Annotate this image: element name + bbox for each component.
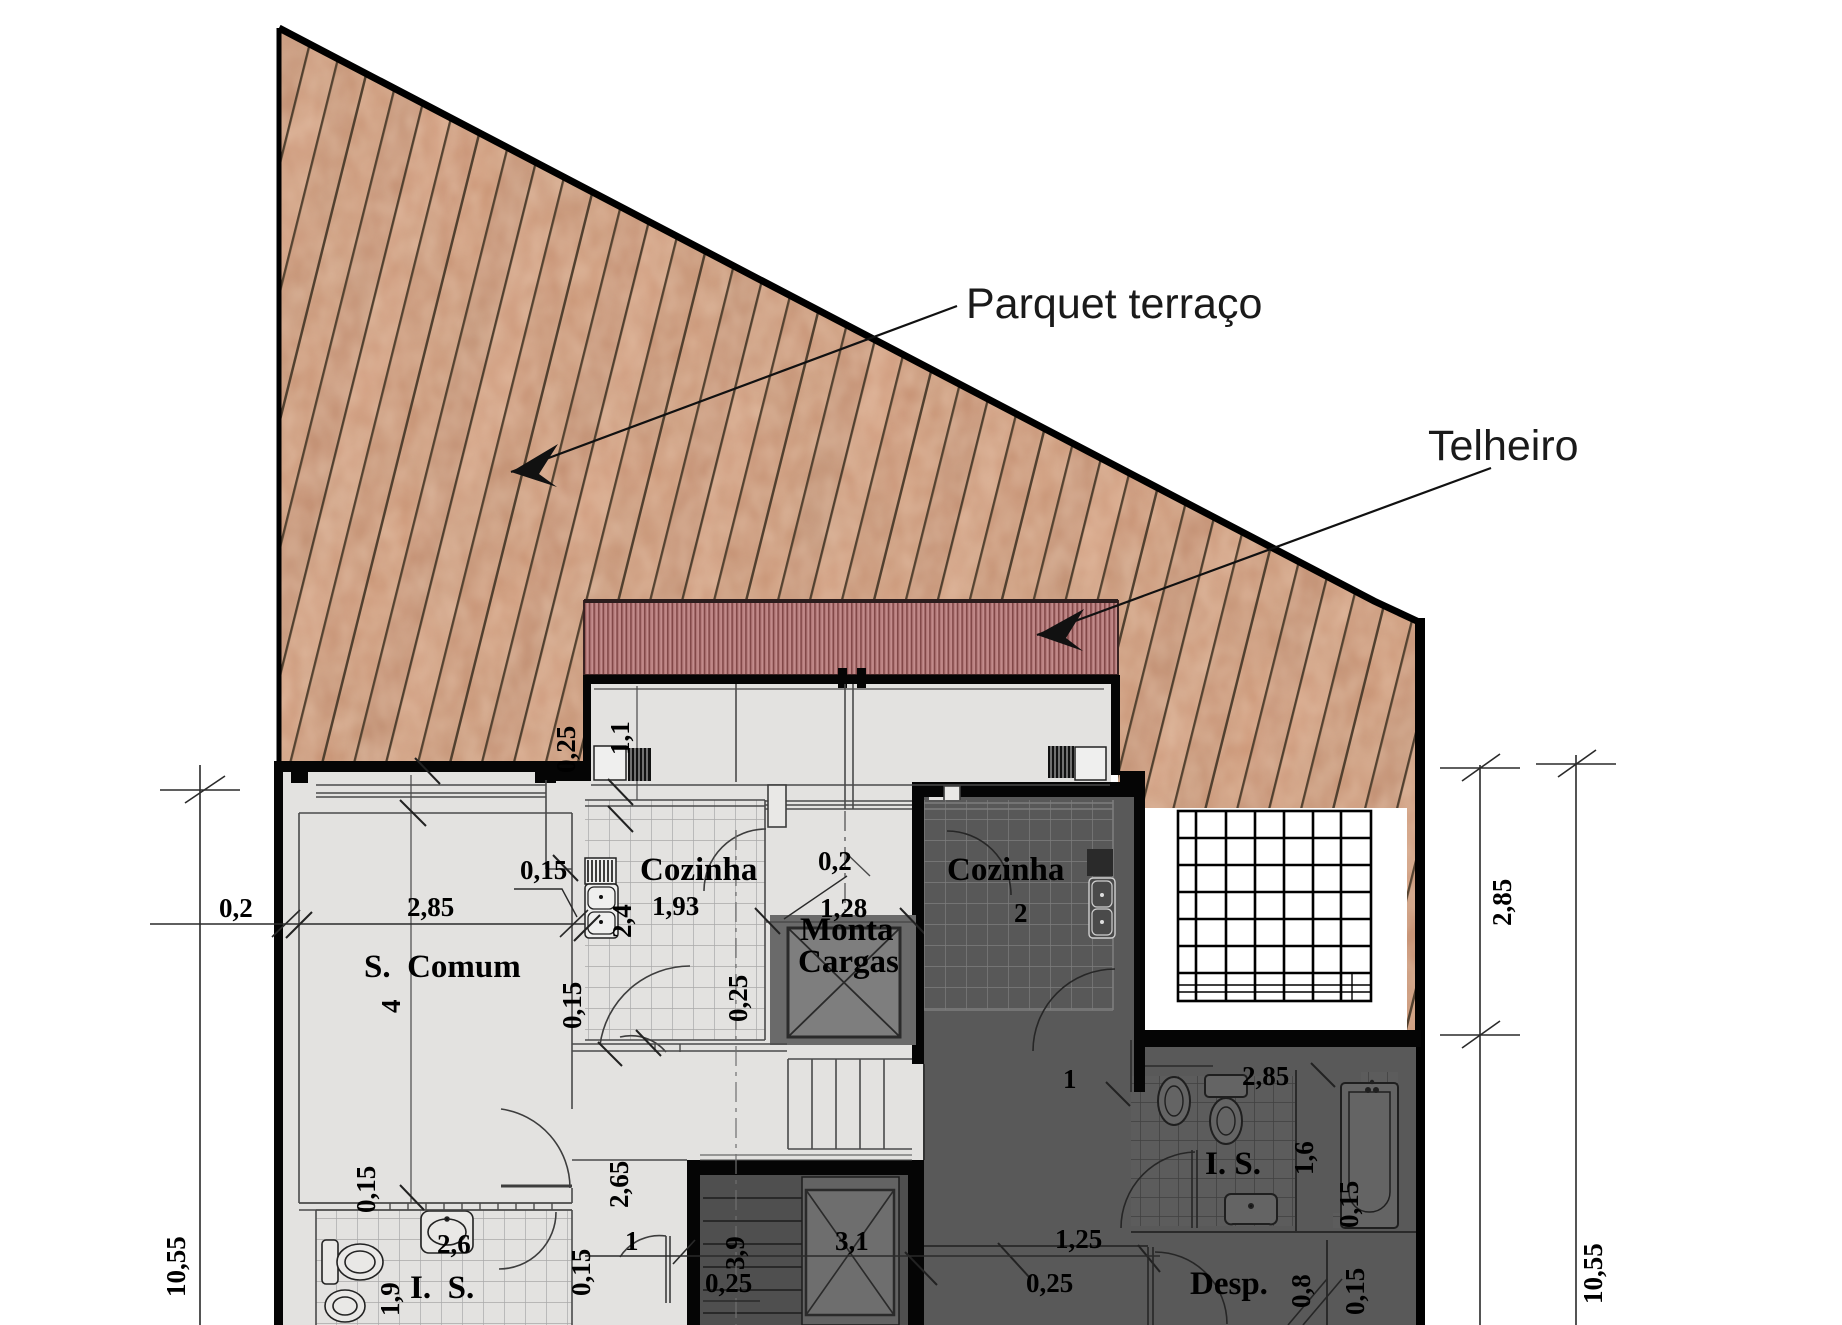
svg-text:0,15: 0,15	[557, 982, 587, 1029]
svg-text:Cozinha: Cozinha	[640, 852, 757, 888]
svg-text:3,9: 3,9	[720, 1236, 750, 1270]
svg-text:1,6: 1,6	[1289, 1141, 1319, 1175]
svg-text:0,15: 0,15	[566, 1249, 596, 1296]
svg-text:0,25: 0,25	[551, 726, 581, 773]
svg-text:10,55: 10,55	[1578, 1243, 1608, 1304]
svg-text:S. Comum: S. Comum	[364, 949, 521, 985]
svg-text:0,2: 0,2	[219, 893, 253, 923]
svg-text:1: 1	[625, 1226, 639, 1256]
svg-text:2,65: 2,65	[604, 1161, 634, 1208]
svg-text:I. S.: I. S.	[410, 1270, 474, 1306]
svg-text:4: 4	[376, 1000, 406, 1014]
svg-text:1,25: 1,25	[1055, 1224, 1102, 1254]
svg-text:0,25: 0,25	[705, 1268, 752, 1298]
svg-text:0,2: 0,2	[818, 846, 852, 876]
svg-text:0,15: 0,15	[1340, 1268, 1370, 1315]
svg-text:2,85: 2,85	[1487, 879, 1517, 926]
svg-text:Cargas: Cargas	[798, 944, 899, 980]
svg-text:1,1: 1,1	[605, 721, 635, 755]
svg-text:Desp.: Desp.	[1190, 1266, 1268, 1302]
svg-text:0,15: 0,15	[520, 855, 567, 885]
svg-text:0,8: 0,8	[1286, 1274, 1316, 1308]
svg-text:2,6: 2,6	[437, 1229, 471, 1259]
svg-text:Cozinha: Cozinha	[947, 852, 1064, 888]
svg-text:Parquet terraço: Parquet terraço	[966, 280, 1262, 328]
svg-text:1,28: 1,28	[820, 893, 867, 923]
svg-text:1,9: 1,9	[375, 1282, 405, 1316]
svg-text:1,93: 1,93	[652, 891, 699, 921]
svg-text:Telheiro: Telheiro	[1428, 422, 1579, 470]
svg-text:1: 1	[1063, 1064, 1077, 1094]
svg-text:2: 2	[1014, 898, 1028, 928]
svg-text:0,15: 0,15	[1334, 1181, 1364, 1228]
svg-text:I. S.: I. S.	[1205, 1146, 1261, 1182]
svg-text:2,4: 2,4	[607, 904, 637, 938]
svg-text:2,85: 2,85	[1242, 1061, 1289, 1091]
svg-text:3,1: 3,1	[835, 1226, 869, 1256]
svg-text:0,25: 0,25	[723, 975, 753, 1022]
svg-text:0,25: 0,25	[1026, 1268, 1073, 1298]
svg-text:10,55: 10,55	[161, 1236, 191, 1297]
svg-text:2,85: 2,85	[407, 892, 454, 922]
svg-text:0,15: 0,15	[351, 1166, 381, 1213]
